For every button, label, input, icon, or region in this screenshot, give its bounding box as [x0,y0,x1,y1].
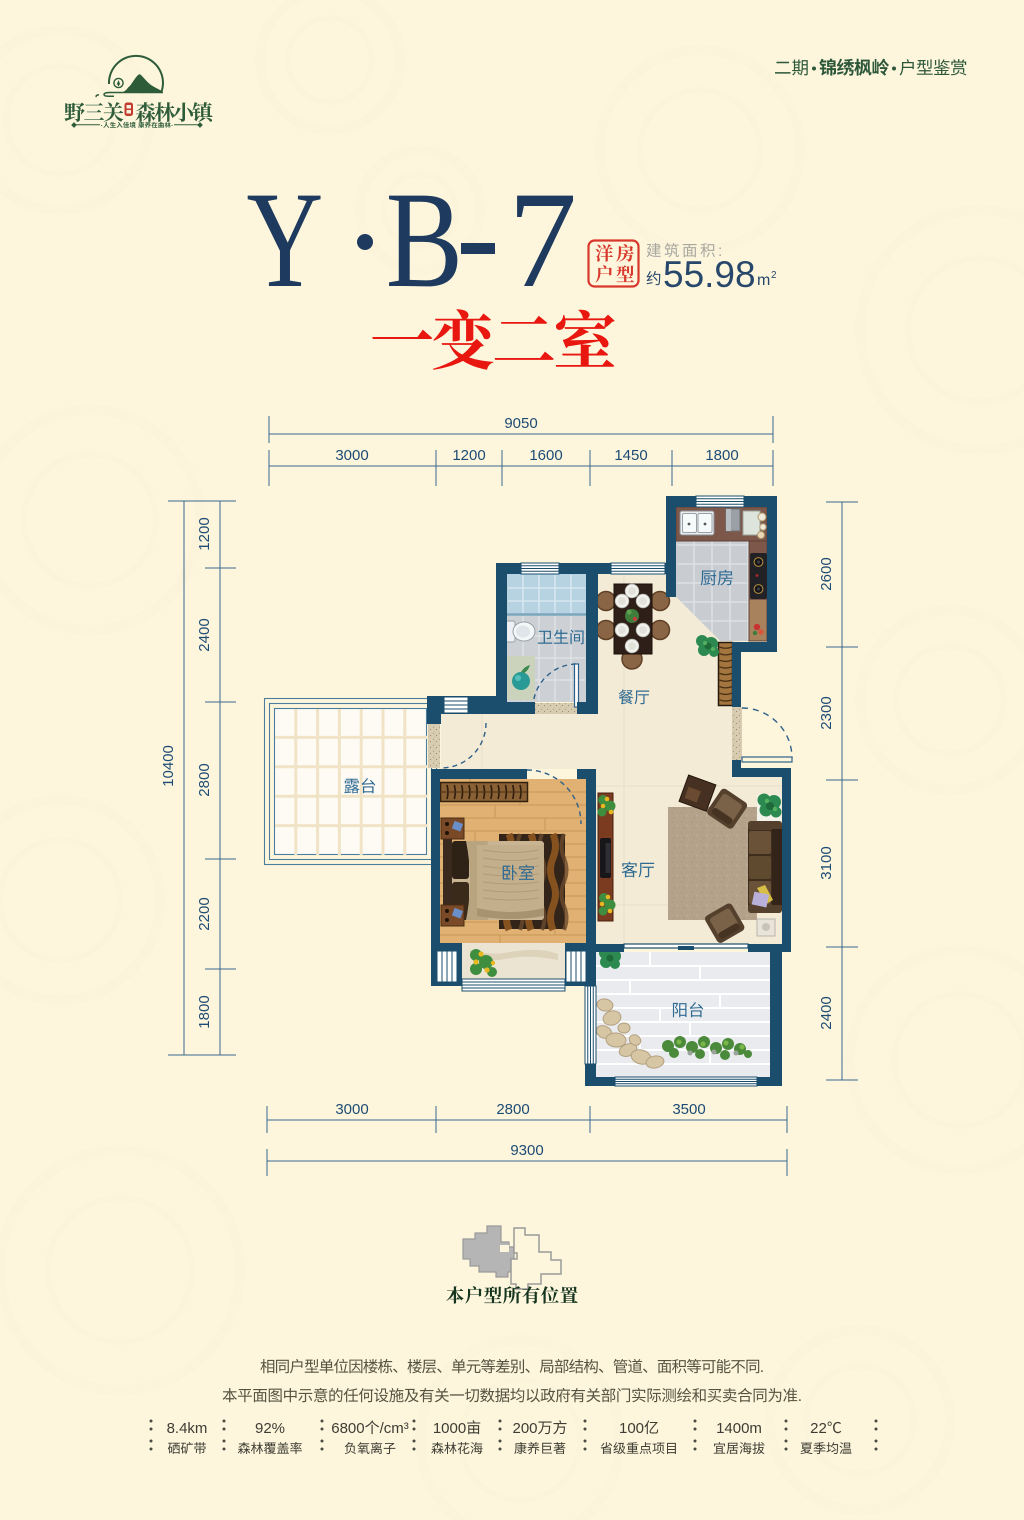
svg-text:Y: Y [247,163,324,317]
svg-text:2600: 2600 [818,557,835,590]
svg-text:2400: 2400 [196,618,213,651]
svg-text:2800: 2800 [196,763,213,796]
svg-text:.: . [798,1388,802,1405]
svg-text:3500: 3500 [672,1101,705,1118]
svg-text:B: B [386,163,463,317]
svg-text:1450: 1450 [614,447,647,464]
svg-text:1800: 1800 [705,447,738,464]
svg-text:1200: 1200 [452,447,485,464]
svg-text:m: m [757,272,770,289]
svg-text:55.98: 55.98 [663,254,756,295]
svg-text:·: · [101,122,103,129]
svg-text:7: 7 [508,163,577,316]
svg-text:2: 2 [771,270,777,281]
svg-text:3000: 3000 [335,1101,368,1118]
svg-text:1800: 1800 [196,995,213,1028]
svg-text:3100: 3100 [818,846,835,879]
svg-text:8.4km: 8.4km [167,1420,208,1437]
svg-text:1400m: 1400m [716,1420,762,1437]
svg-text:.: . [760,1359,764,1376]
svg-text:/cm³: /cm³ [380,1420,409,1437]
svg-text:·: · [171,122,173,129]
svg-text:10400: 10400 [160,745,177,787]
svg-text:92%: 92% [255,1420,285,1437]
svg-text:9050: 9050 [504,415,537,432]
svg-text:1200: 1200 [196,517,213,550]
svg-text:2200: 2200 [196,897,213,930]
svg-text:1000: 1000 [433,1420,466,1437]
svg-text:6800: 6800 [331,1420,364,1437]
svg-text:200: 200 [512,1420,537,1437]
svg-text:2800: 2800 [496,1101,529,1118]
svg-text:100: 100 [619,1420,644,1437]
svg-text:2400: 2400 [818,996,835,1029]
svg-text:9300: 9300 [510,1142,543,1159]
svg-text:3000: 3000 [335,447,368,464]
svg-text:1600: 1600 [529,447,562,464]
svg-text:22: 22 [810,1420,827,1437]
svg-text:2300: 2300 [818,696,835,729]
